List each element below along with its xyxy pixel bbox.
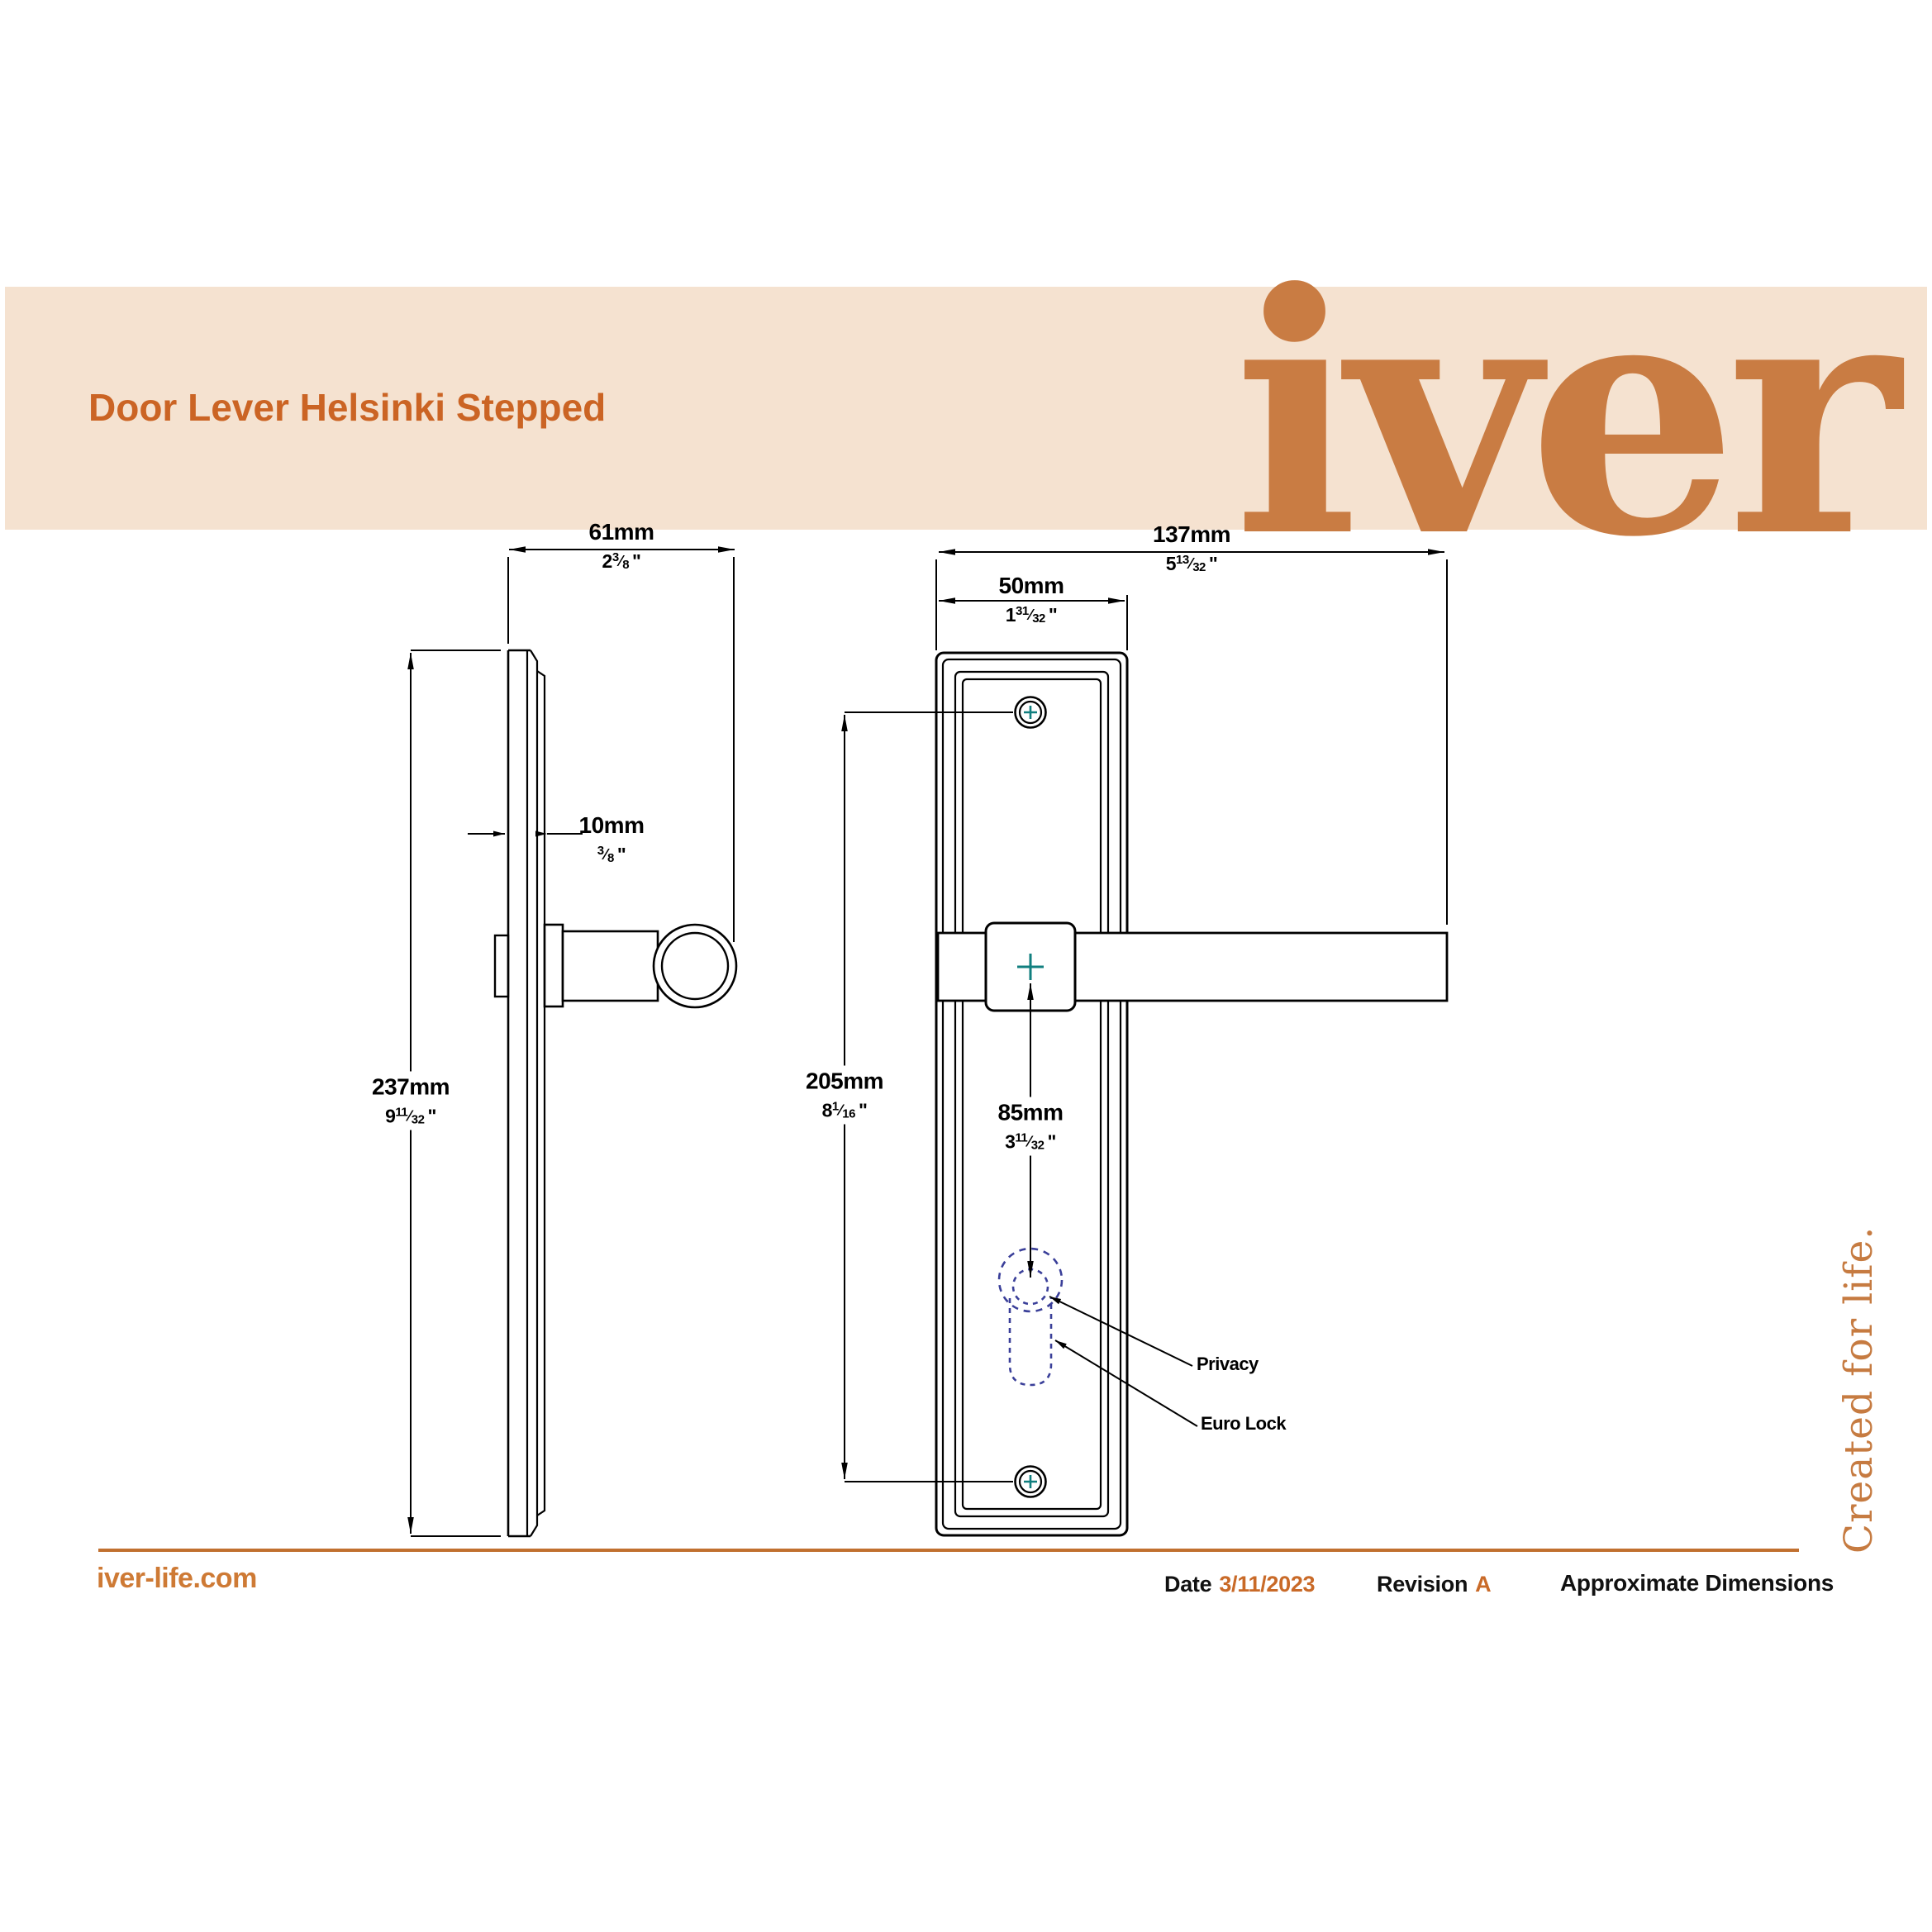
revision-label: Revision (1377, 1572, 1468, 1597)
approximate-dimensions-note: Approximate Dimensions (1560, 1570, 1834, 1597)
side-lever-collar (545, 925, 563, 1006)
tagline-vertical: Created for life. (1836, 1145, 1882, 1554)
dim-thickness-10mm: 10mm 38" (579, 814, 645, 864)
privacy-label: Privacy (1197, 1355, 1259, 1373)
euro-cylinder-tail (1010, 1298, 1051, 1385)
revision-value: A (1475, 1572, 1491, 1597)
date-label: Date (1164, 1572, 1211, 1597)
side-fixing-tab (495, 935, 508, 997)
dim-offset-85mm: 85mm 31132" (991, 1097, 1071, 1156)
date-value: 3/11/2023 (1219, 1572, 1315, 1597)
spec-sheet-page: Door Lever Helsinki Stepped iver (0, 0, 1932, 1932)
dim-height-237mm: 237mm 91132" (364, 1072, 457, 1130)
date-field: Date 3/11/2023 (1164, 1572, 1315, 1597)
side-lever-grip-outer (654, 925, 736, 1007)
revision-field: Revision A (1377, 1572, 1491, 1597)
side-view (411, 550, 736, 1536)
technical-drawing-svg (0, 0, 1932, 1932)
footer-divider (98, 1549, 1799, 1552)
dim-width-137mm: 137mm 51332" (1153, 523, 1230, 573)
dim-width-50mm: 50mm 13132" (999, 574, 1064, 625)
dim-centres-205mm: 205mm 8116" (798, 1066, 891, 1125)
front-plate-outer (936, 653, 1127, 1535)
front-view (845, 552, 1447, 1535)
euro-lock-label: Euro Lock (1201, 1415, 1286, 1433)
website-link[interactable]: iver-life.com (97, 1563, 257, 1595)
dim-width-61mm: 61mm 238" (589, 521, 654, 571)
side-lever-neck (563, 931, 658, 1001)
